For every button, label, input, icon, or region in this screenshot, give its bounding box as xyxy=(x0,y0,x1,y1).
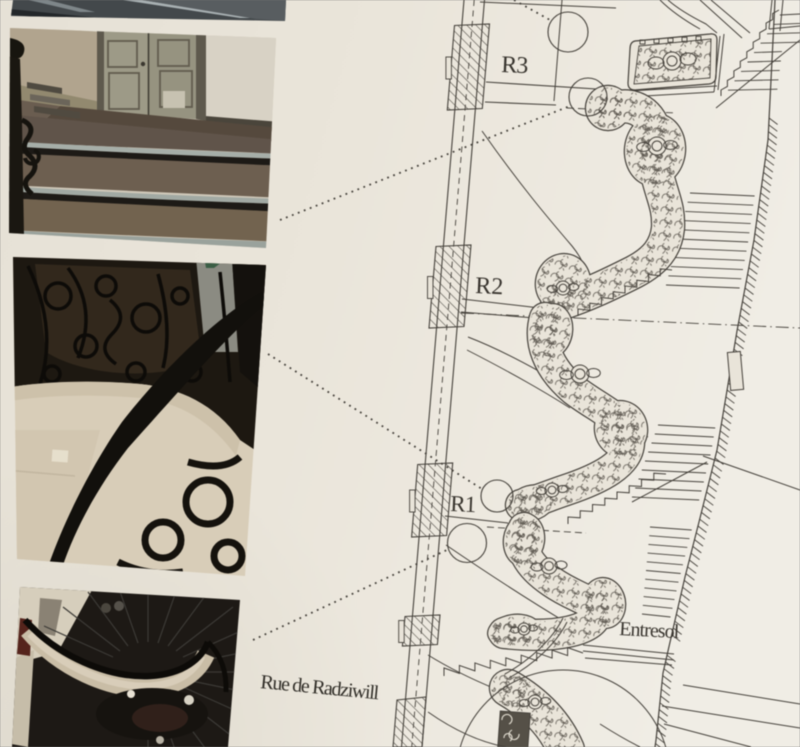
svg-text:Entresol: Entresol xyxy=(619,618,681,643)
svg-text:R1: R1 xyxy=(450,491,477,517)
svg-text:R2: R2 xyxy=(475,273,504,300)
svg-text:R3: R3 xyxy=(501,52,529,79)
